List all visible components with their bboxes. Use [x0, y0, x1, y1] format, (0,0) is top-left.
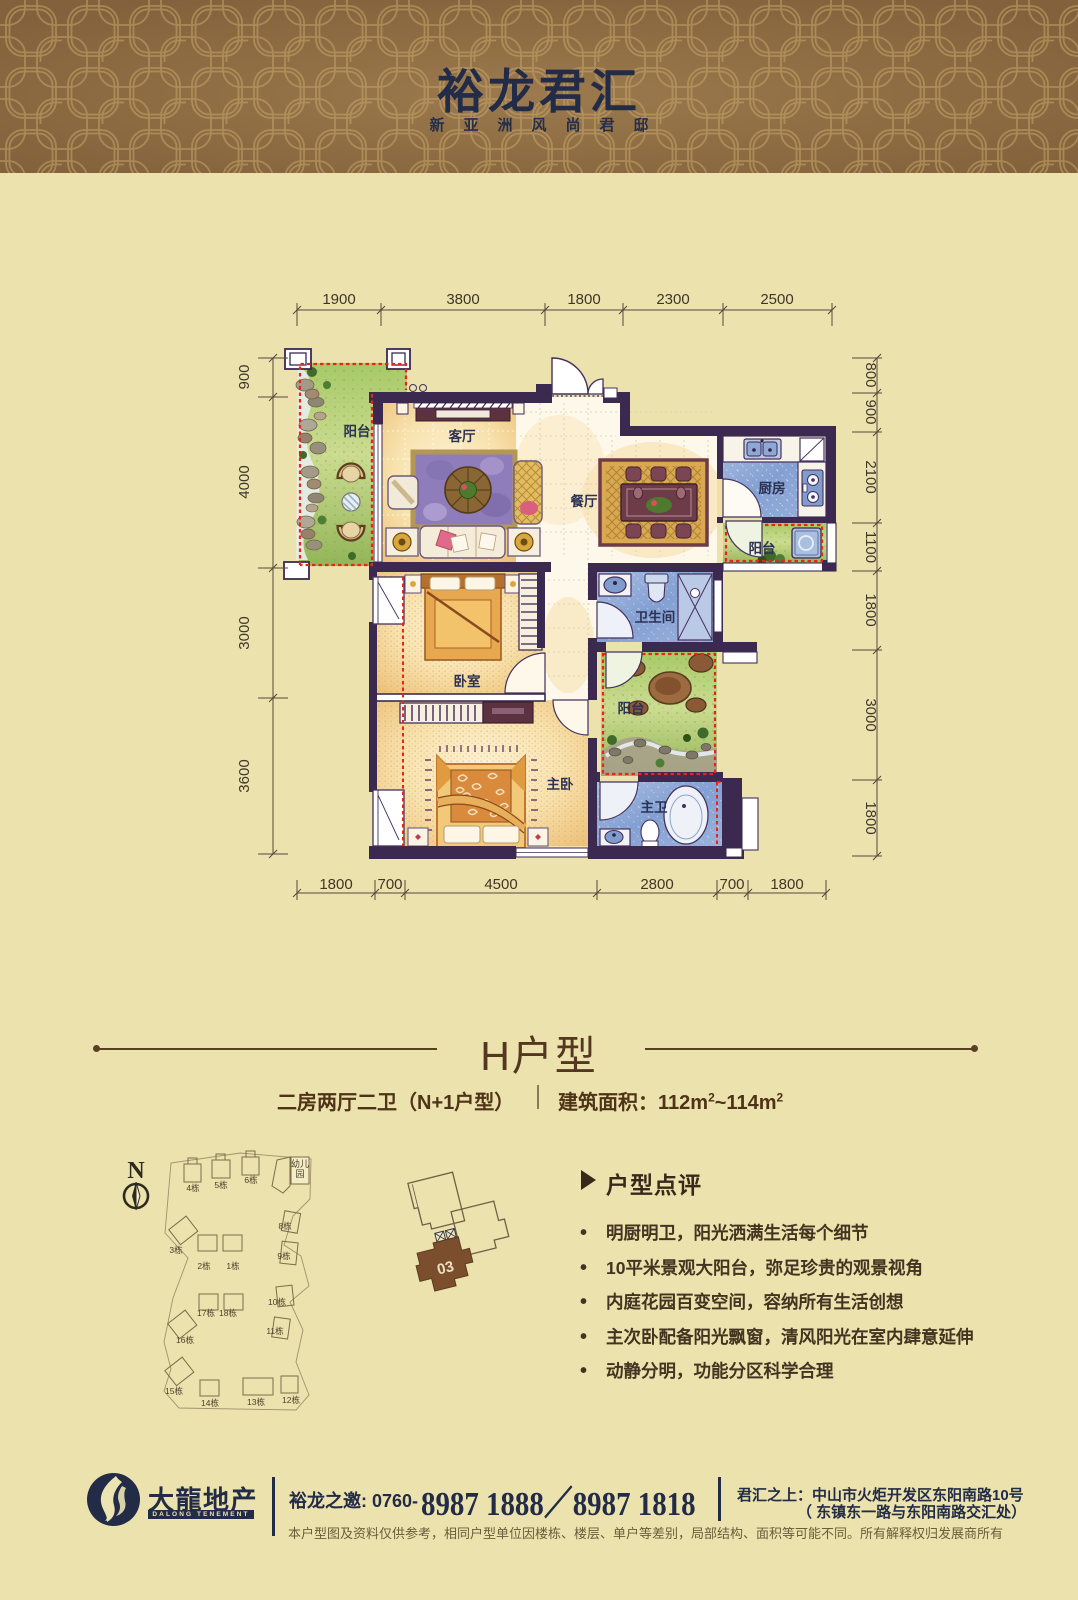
svg-text:2100: 2100 [862, 460, 879, 493]
svg-text:阳台: 阳台 [618, 700, 645, 716]
svg-text:1800: 1800 [862, 593, 879, 626]
svg-text:厨房: 厨房 [759, 480, 786, 496]
svg-text:3800: 3800 [446, 291, 479, 308]
svg-text:2800: 2800 [640, 876, 673, 893]
svg-text:4栋: 4栋 [186, 1183, 200, 1193]
svg-text:14栋: 14栋 [201, 1398, 219, 1408]
svg-text:2500: 2500 [760, 291, 793, 308]
svg-text:3栋: 3栋 [169, 1245, 183, 1255]
svg-text:1800: 1800 [862, 801, 879, 834]
svg-text:5栋: 5栋 [214, 1180, 228, 1190]
svg-text:1栋: 1栋 [226, 1261, 240, 1271]
svg-text:阳台: 阳台 [749, 540, 776, 556]
svg-text:10栋: 10栋 [268, 1297, 286, 1307]
svg-text:3600: 3600 [236, 759, 253, 792]
svg-text:700: 700 [719, 876, 744, 893]
svg-text:幼儿: 幼儿 [291, 1158, 309, 1169]
svg-text:17栋: 17栋 [197, 1308, 215, 1318]
svg-text:1900: 1900 [322, 291, 355, 308]
svg-text:园: 园 [295, 1169, 304, 1179]
svg-text:3000: 3000 [236, 616, 253, 649]
svg-text:9栋: 9栋 [277, 1251, 291, 1261]
svg-text:N: N [127, 1158, 145, 1184]
svg-text:餐厅: 餐厅 [570, 493, 599, 509]
svg-text:900: 900 [236, 364, 253, 389]
svg-text:16栋: 16栋 [176, 1335, 194, 1345]
svg-text:18栋: 18栋 [219, 1308, 237, 1318]
svg-text:1800: 1800 [567, 291, 600, 308]
svg-text:2栋: 2栋 [197, 1261, 211, 1271]
svg-text:700: 700 [377, 876, 402, 893]
svg-text:900: 900 [862, 399, 879, 424]
svg-text:15栋: 15栋 [165, 1386, 183, 1396]
svg-text:阳台: 阳台 [344, 423, 371, 439]
svg-text:主卧: 主卧 [547, 776, 575, 792]
svg-text:卧室: 卧室 [454, 673, 481, 689]
svg-text:2300: 2300 [656, 291, 689, 308]
svg-text:6栋: 6栋 [244, 1175, 258, 1185]
svg-text:1100: 1100 [862, 531, 879, 563]
svg-text:客厅: 客厅 [448, 428, 476, 444]
svg-text:4500: 4500 [484, 876, 517, 893]
svg-text:1800: 1800 [770, 876, 803, 893]
svg-text:11栋: 11栋 [266, 1326, 284, 1336]
svg-text:12栋: 12栋 [282, 1395, 300, 1405]
svg-text:3000: 3000 [862, 698, 879, 731]
svg-text:8栋: 8栋 [278, 1221, 292, 1231]
svg-text:4000: 4000 [236, 465, 253, 498]
svg-text:卫生间: 卫生间 [635, 609, 676, 625]
svg-text:800: 800 [862, 362, 879, 387]
svg-text:主卫: 主卫 [641, 799, 669, 815]
svg-text:1800: 1800 [319, 876, 352, 893]
svg-text:13栋: 13栋 [247, 1397, 265, 1407]
